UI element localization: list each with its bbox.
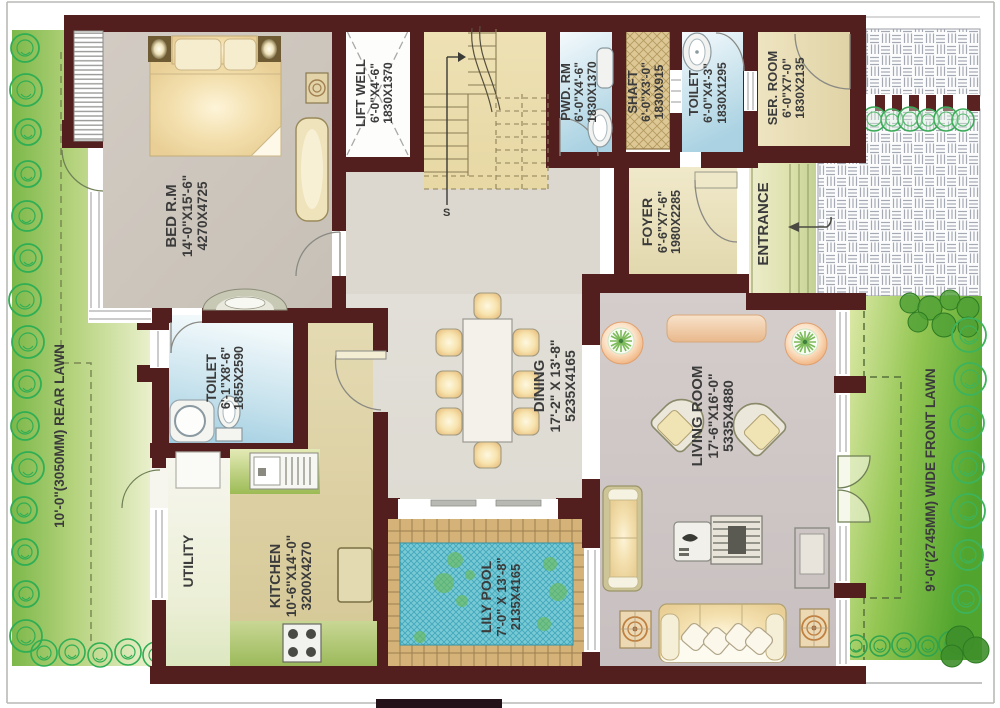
svg-text:2135X4165: 2135X4165 xyxy=(508,564,523,631)
svg-text:ENTRANCE: ENTRANCE xyxy=(755,182,772,265)
svg-text:DINING: DINING xyxy=(531,360,548,413)
svg-text:SHAFT: SHAFT xyxy=(625,70,640,113)
svg-text:14'-0"X15'-6": 14'-0"X15'-6" xyxy=(180,175,195,257)
svg-text:6'-6"X7'-6": 6'-6"X7'-6" xyxy=(656,191,670,253)
svg-text:5335X4880: 5335X4880 xyxy=(720,380,736,452)
svg-text:SER. ROOM: SER. ROOM xyxy=(765,51,780,125)
svg-text:1830X2135: 1830X2135 xyxy=(793,57,807,119)
svg-text:5235X4165: 5235X4165 xyxy=(562,350,578,422)
svg-text:PWD. RM: PWD. RM xyxy=(558,63,573,121)
svg-text:LILY POOL: LILY POOL xyxy=(478,560,494,633)
svg-text:10'-6"X14'-0": 10'-6"X14'-0" xyxy=(284,535,299,617)
svg-text:4270X4725: 4270X4725 xyxy=(195,181,210,251)
svg-text:S: S xyxy=(443,207,450,219)
svg-text:6'-0"X7'-0": 6'-0"X7'-0" xyxy=(780,58,794,118)
svg-text:17'-6"X16'-0": 17'-6"X16'-0" xyxy=(705,373,721,458)
svg-text:1830X1370: 1830X1370 xyxy=(585,61,599,123)
svg-text:9'-0"(2745MM) WIDE FRONT LAWN: 9'-0"(2745MM) WIDE FRONT LAWN xyxy=(923,368,938,591)
svg-text:TOILET: TOILET xyxy=(686,70,701,116)
svg-text:UTILITY: UTILITY xyxy=(180,534,196,588)
svg-text:7'-0" X 13'-8": 7'-0" X 13'-8" xyxy=(494,557,509,636)
svg-text:6'-1"X8'-6": 6'-1"X8'-6" xyxy=(219,347,233,409)
svg-text:LIVING ROOM: LIVING ROOM xyxy=(689,366,706,467)
svg-text:TOILET: TOILET xyxy=(204,353,219,402)
svg-text:1830X1370: 1830X1370 xyxy=(381,62,395,124)
svg-text:FOYER: FOYER xyxy=(639,198,655,246)
svg-text:6'-0"X4'-3": 6'-0"X4'-3" xyxy=(701,63,715,123)
svg-text:KITCHEN: KITCHEN xyxy=(268,544,284,608)
svg-text:1830X1295: 1830X1295 xyxy=(715,62,729,124)
svg-text:10'-0"(3050MM) REAR LAWN: 10'-0"(3050MM) REAR LAWN xyxy=(52,344,67,528)
svg-text:6'-0"X4'-6": 6'-0"X4'-6" xyxy=(368,63,382,123)
svg-text:1855X2590: 1855X2590 xyxy=(232,346,246,410)
svg-text:BED R.M: BED R.M xyxy=(163,184,180,247)
svg-text:6'-0"X3'-0": 6'-0"X3'-0" xyxy=(639,62,653,122)
svg-text:1830X915: 1830X915 xyxy=(652,64,666,119)
svg-text:6'-0"X4'-6": 6'-0"X4'-6" xyxy=(572,62,586,122)
svg-text:1980X2285: 1980X2285 xyxy=(669,190,683,254)
svg-text:17'-2" X 13'-8": 17'-2" X 13'-8" xyxy=(547,339,563,432)
svg-text:LIFT WELL: LIFT WELL xyxy=(353,59,368,127)
svg-text:3200X4270: 3200X4270 xyxy=(299,541,314,610)
